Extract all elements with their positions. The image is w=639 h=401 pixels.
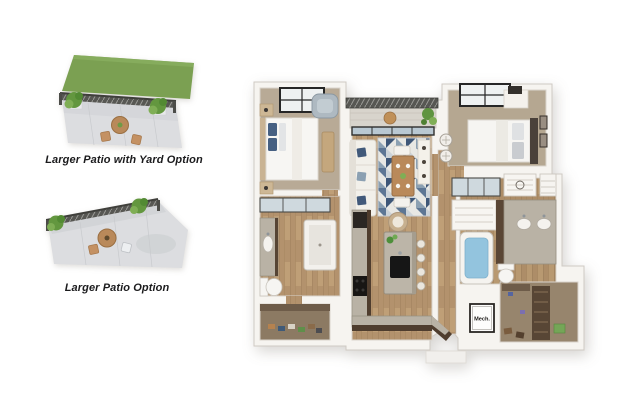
double-vanity bbox=[496, 200, 556, 264]
mirrored-closet-doors bbox=[260, 198, 330, 212]
washer-dryer-closet bbox=[504, 174, 536, 196]
hanging-clothes-shelf bbox=[532, 286, 550, 340]
kitchen-island bbox=[384, 232, 416, 294]
patio-option-image[interactable] bbox=[46, 192, 192, 274]
storage-bin bbox=[554, 324, 565, 333]
louvered-closet bbox=[452, 200, 496, 230]
console-table bbox=[418, 140, 430, 184]
bathroom1-vanity bbox=[260, 218, 278, 276]
stove bbox=[353, 276, 367, 296]
bedroom1-armchair bbox=[312, 94, 338, 118]
mech-room-label: Mech. bbox=[474, 317, 490, 323]
page: Larger Patio with Yard Option bbox=[0, 0, 639, 401]
bedroom2-door-threshold bbox=[450, 166, 464, 178]
bedroom2-window bbox=[460, 84, 510, 106]
coffee-station bbox=[353, 212, 367, 228]
patio-yard-option-caption: Larger Patio with Yard Option bbox=[44, 154, 204, 166]
entry-step bbox=[426, 351, 466, 363]
bathtub bbox=[460, 232, 493, 284]
balcony-table bbox=[384, 112, 396, 124]
bedroom1-bench bbox=[322, 132, 334, 172]
patio-option-caption: Larger Patio Option bbox=[42, 282, 192, 294]
sliding-glass-door bbox=[352, 127, 434, 135]
bedroom2-bed bbox=[468, 118, 538, 164]
mech-room: Mech. bbox=[470, 304, 494, 332]
closet-door-threshold bbox=[286, 296, 302, 304]
living-hall-opening bbox=[432, 154, 438, 196]
toilet bbox=[260, 278, 282, 296]
floor-plan-image[interactable]: Mech. bbox=[246, 78, 586, 398]
toilet2 bbox=[498, 264, 514, 283]
bedroom2-closet-doors bbox=[452, 178, 500, 196]
patio-yard-option-image[interactable] bbox=[58, 55, 194, 150]
balcony-railing bbox=[346, 98, 438, 108]
walkin-shower bbox=[304, 220, 336, 270]
balcony bbox=[346, 98, 438, 128]
bedroom1-door-threshold bbox=[322, 190, 338, 196]
sofa bbox=[350, 140, 376, 216]
linen-closet bbox=[540, 174, 556, 196]
accent-chair bbox=[389, 213, 408, 232]
bedroom1-bed bbox=[260, 118, 318, 180]
yard-lawn bbox=[62, 55, 194, 99]
island-cooktop bbox=[390, 256, 410, 278]
